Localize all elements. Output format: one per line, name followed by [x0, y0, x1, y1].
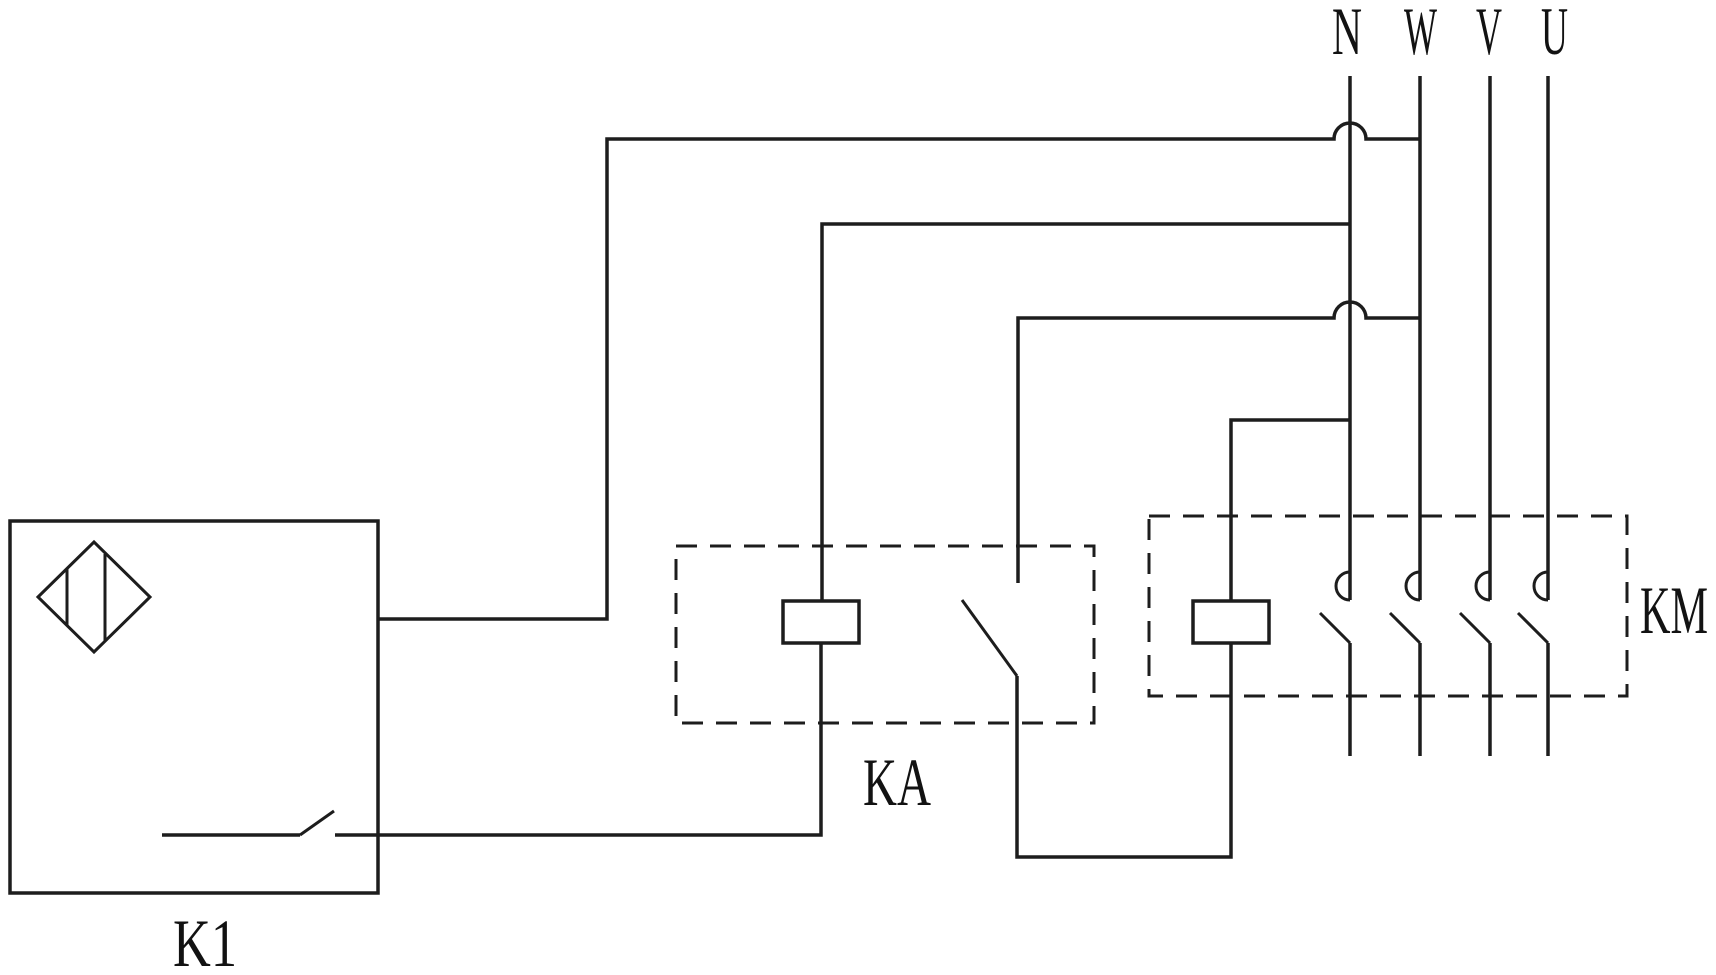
phase-n-label: N — [1332, 0, 1362, 69]
km-label: KM — [1640, 572, 1708, 648]
phase-w-label: W — [1404, 0, 1437, 69]
phase-u-label: U — [1541, 0, 1568, 69]
circuit-diagram: N W V U K1 KA — [0, 0, 1716, 975]
km-coil — [1193, 601, 1269, 643]
ka-coil — [783, 601, 859, 643]
phase-v-label: V — [1476, 0, 1502, 69]
k1-label: K1 — [173, 905, 237, 975]
canvas-background — [0, 0, 1716, 975]
schematic-page: N W V U K1 KA — [0, 0, 1716, 975]
ka-label: KA — [863, 744, 931, 820]
